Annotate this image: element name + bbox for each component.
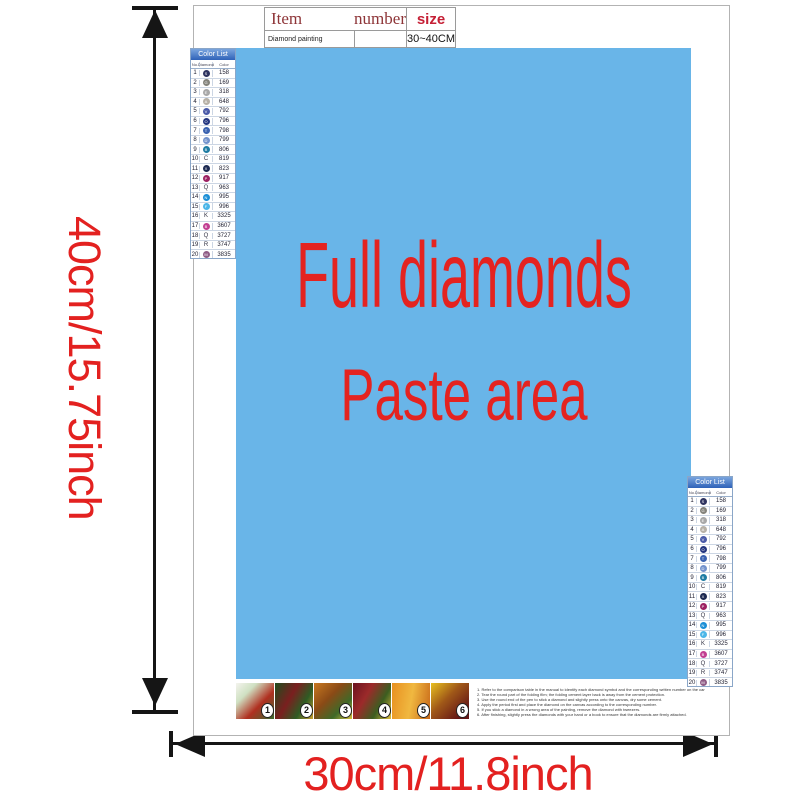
dmc-color-code: 963	[710, 613, 732, 619]
color-list-rows: 1S1582G1693E3184A6485V7926O7967T7988D799…	[688, 497, 732, 687]
color-swatch: F	[203, 203, 210, 210]
number-header: number	[354, 8, 406, 31]
diamond-symbol-icon: B	[697, 651, 710, 658]
step-number-badge: 3	[339, 703, 352, 718]
dmc-color-code: 806	[213, 147, 235, 153]
diamond-symbol-icon: B	[697, 574, 710, 581]
diamond-symbol-icon: Q	[200, 185, 213, 191]
color-row-number: 3	[191, 89, 200, 95]
color-row: 2G169	[191, 79, 235, 89]
symbol-letter: Q	[204, 233, 209, 239]
diamond-symbol-icon: P	[697, 603, 710, 610]
dmc-color-code: 158	[213, 70, 235, 76]
diamond-symbol-icon: T	[200, 127, 213, 134]
color-row-number: 18	[688, 661, 697, 667]
dmc-color-code: 917	[710, 603, 732, 609]
step-number-badge: 2	[300, 703, 313, 718]
diamond-symbol-icon: M	[697, 679, 710, 686]
diamond-symbol-icon: R	[200, 242, 213, 248]
dmc-color-code: 3727	[213, 233, 235, 239]
horizontal-dimension-line	[172, 742, 716, 745]
color-row: 9B806	[191, 145, 235, 155]
color-swatch: B	[700, 651, 707, 658]
dmc-color-code: 648	[213, 99, 235, 105]
color-row-number: 19	[688, 670, 697, 676]
dmc-color-code: 3747	[710, 670, 732, 676]
diamond-symbol-icon: Q	[200, 233, 213, 239]
color-swatch: G	[203, 79, 210, 86]
dmc-color-code: 3325	[213, 213, 235, 219]
color-swatch: E	[700, 517, 707, 524]
color-row-number: 18	[191, 233, 200, 239]
symbol-letter: Q	[701, 613, 706, 619]
dmc-color-code: 169	[213, 80, 235, 86]
dmc-color-code: 158	[710, 498, 732, 504]
dmc-color-code: 792	[710, 536, 732, 542]
color-row: 4A648	[191, 98, 235, 108]
color-row-number: 15	[688, 632, 697, 638]
color-row-number: 20	[191, 252, 200, 258]
diamond-symbol-icon: K	[697, 641, 710, 647]
color-row: 16K3325	[191, 212, 235, 222]
color-row: 18Q3727	[191, 231, 235, 241]
color-swatch: V	[203, 108, 210, 115]
color-row-number: 9	[688, 575, 697, 581]
color-row: 13Q963	[688, 612, 732, 622]
diamond-symbol-icon: D	[697, 565, 710, 572]
height-dimension-label: 40cm/15.75inch	[58, 216, 110, 536]
dmc-color-code: 963	[213, 185, 235, 191]
canvas-sheet: Item number size Diamond painting 30~40C…	[193, 5, 730, 736]
color-swatch: T	[203, 127, 210, 134]
dmc-color-code: 796	[213, 118, 235, 124]
dmc-color-code: 318	[213, 89, 235, 95]
diamond-symbol-icon: D	[200, 137, 213, 144]
color-swatch: B	[203, 146, 210, 153]
vertical-arrow-bottom-cap	[132, 710, 178, 714]
color-list-right: Color List No. Diamond Color 1S1582G1693…	[687, 476, 733, 687]
diamond-symbol-icon: A	[697, 526, 710, 533]
step-thumbnail: 2	[275, 683, 313, 719]
diamond-symbol-icon: Q	[697, 613, 710, 619]
color-row: 10C819	[191, 155, 235, 165]
color-row: 3E318	[688, 516, 732, 526]
color-swatch: T	[700, 555, 707, 562]
diamond-symbol-icon: X	[200, 165, 213, 172]
dmc-color-code: 819	[710, 584, 732, 590]
color-row-number: 7	[191, 128, 200, 134]
diamond-symbol-icon: O	[697, 546, 710, 553]
color-row-number: 17	[191, 223, 200, 229]
color-swatch: O	[203, 118, 210, 125]
dmc-color-code: 792	[213, 108, 235, 114]
dmc-color-code: 3325	[710, 641, 732, 647]
diamond-symbol-icon: C	[697, 584, 710, 590]
color-row-number: 5	[191, 108, 200, 114]
color-row-number: 7	[688, 556, 697, 562]
step-thumbnail: 3	[314, 683, 352, 719]
step-number-badge: 4	[378, 703, 391, 718]
color-row-number: 3	[688, 517, 697, 523]
color-swatch: O	[700, 546, 707, 553]
diamond-symbol-icon: C	[200, 156, 213, 162]
color-row-number: 1	[191, 70, 200, 76]
dmc-color-code: 823	[710, 594, 732, 600]
color-swatch: A	[700, 526, 707, 533]
step-thumbnail: 1	[236, 683, 274, 719]
dmc-color-code: 799	[710, 565, 732, 571]
color-row-number: 6	[191, 118, 200, 124]
diamond-symbol-icon: S	[200, 70, 213, 77]
color-row-number: 8	[191, 137, 200, 143]
color-list-title: Color List	[191, 49, 235, 60]
dmc-color-code: 819	[213, 156, 235, 162]
dmc-color-code: 995	[710, 622, 732, 628]
color-row-number: 2	[191, 80, 200, 86]
diamond-symbol-icon: T	[697, 555, 710, 562]
color-row: 19R3747	[688, 669, 732, 679]
color-row: 12P917	[688, 602, 732, 612]
color-row: 8D799	[191, 136, 235, 146]
paste-area-title-line1: Full diamonds	[296, 229, 632, 322]
diamond-symbol-icon: E	[200, 89, 213, 96]
step-thumbnail: 5	[392, 683, 430, 719]
color-row: 16K3325	[688, 640, 732, 650]
color-swatch: M	[203, 251, 210, 258]
symbol-letter: R	[701, 670, 705, 676]
color-row-number: 19	[191, 242, 200, 248]
color-list-rows: 1S1582G1693E3184A6485V7926O7967T7988D799…	[191, 69, 235, 259]
color-row: 20M3835	[688, 678, 732, 687]
color-row-number: 14	[191, 194, 200, 200]
color-row: 10C819	[688, 583, 732, 593]
symbol-letter: C	[204, 156, 208, 162]
dmc-color-code: 798	[213, 128, 235, 134]
col-diamond: Diamond	[697, 490, 710, 495]
color-row-number: 20	[688, 680, 697, 686]
color-row: 9B806	[688, 573, 732, 583]
color-row: 7T798	[191, 126, 235, 136]
color-row-number: 5	[688, 536, 697, 542]
color-row: 1S158	[688, 497, 732, 507]
color-row-number: 8	[688, 565, 697, 571]
color-list-column-headers: No. Diamond Color	[191, 60, 235, 69]
diamond-symbol-icon: V	[697, 536, 710, 543]
step-thumbnail: 6	[431, 683, 469, 719]
color-swatch: S	[203, 70, 210, 77]
diamond-symbol-icon: P	[200, 175, 213, 182]
color-row: 5V792	[191, 107, 235, 117]
symbol-letter: K	[701, 641, 705, 647]
color-swatch: S	[700, 498, 707, 505]
color-swatch: D	[700, 565, 707, 572]
color-row: 15F996	[191, 203, 235, 213]
step-thumbnail: 4	[353, 683, 391, 719]
color-swatch: P	[700, 603, 707, 610]
color-row: 14N995	[688, 621, 732, 631]
color-row-number: 16	[191, 213, 200, 219]
color-row-number: 11	[191, 166, 200, 172]
color-row: 3E318	[191, 88, 235, 98]
diamond-symbol-icon: K	[200, 213, 213, 219]
paste-area: Full diamonds Paste area	[236, 48, 691, 679]
col-color: Color	[710, 490, 732, 495]
color-row-number: 11	[688, 594, 697, 600]
width-dimension-label: 30cm/11.8inch	[168, 746, 728, 800]
color-row-number: 10	[688, 584, 697, 590]
color-row: 20M3835	[191, 250, 235, 259]
color-row-number: 12	[191, 175, 200, 181]
dmc-color-code: 806	[710, 575, 732, 581]
dmc-color-code: 648	[710, 527, 732, 533]
dmc-color-code: 169	[710, 508, 732, 514]
color-swatch: G	[700, 507, 707, 514]
color-swatch: F	[700, 631, 707, 638]
color-row: 11X823	[191, 164, 235, 174]
dmc-color-code: 3727	[710, 661, 732, 667]
color-row-number: 4	[688, 527, 697, 533]
color-row: 12P917	[191, 174, 235, 184]
dmc-color-code: 318	[710, 517, 732, 523]
symbol-letter: C	[701, 584, 705, 590]
diamond-symbol-icon: B	[200, 146, 213, 153]
color-row-number: 13	[191, 185, 200, 191]
color-list-title: Color List	[688, 477, 732, 488]
color-row-number: 15	[191, 204, 200, 210]
color-list-left: Color List No. Diamond Color 1S1582G1693…	[190, 48, 236, 259]
col-diamond: Diamond	[200, 62, 213, 67]
dmc-color-code: 798	[710, 556, 732, 562]
color-swatch: V	[700, 536, 707, 543]
number-value	[354, 31, 406, 48]
color-row-number: 9	[191, 147, 200, 153]
color-row-number: 4	[191, 99, 200, 105]
color-row: 1S158	[191, 69, 235, 79]
diamond-symbol-icon: N	[697, 622, 710, 629]
dmc-color-code: 799	[213, 137, 235, 143]
color-swatch: X	[700, 593, 707, 600]
color-row: 5V792	[688, 535, 732, 545]
dmc-color-code: 3607	[710, 651, 732, 657]
diamond-symbol-icon: F	[697, 631, 710, 638]
dmc-color-code: 995	[213, 194, 235, 200]
arrow-down-icon	[142, 678, 168, 706]
dmc-color-code: 796	[710, 546, 732, 552]
color-row-number: 12	[688, 603, 697, 609]
color-swatch: X	[203, 165, 210, 172]
color-row-number: 14	[688, 622, 697, 628]
instruction-text: 1. Refer to the comparison table in the …	[477, 687, 705, 717]
step-number-badge: 6	[456, 703, 469, 718]
color-swatch: P	[203, 175, 210, 182]
diamond-symbol-icon: N	[200, 194, 213, 201]
color-swatch: B	[203, 223, 210, 230]
color-row: 4A648	[688, 526, 732, 536]
color-row: 8D799	[688, 564, 732, 574]
dmc-color-code: 3835	[710, 680, 732, 686]
step-thumbnails: 123456	[236, 683, 469, 719]
color-row: 11X823	[688, 592, 732, 602]
symbol-letter: Q	[204, 185, 209, 191]
diamond-symbol-icon: O	[200, 118, 213, 125]
diamond-symbol-icon: R	[697, 670, 710, 676]
symbol-letter: R	[204, 242, 208, 248]
diamond-symbol-icon: M	[200, 251, 213, 258]
diamond-symbol-icon: G	[200, 79, 213, 86]
color-row-number: 13	[688, 613, 697, 619]
color-row: 17B3607	[191, 222, 235, 232]
color-swatch: N	[203, 194, 210, 201]
color-row: 14N995	[191, 193, 235, 203]
symbol-letter: K	[204, 213, 208, 219]
item-header: Item	[265, 8, 355, 31]
diamond-symbol-icon: F	[200, 203, 213, 210]
item-info-table: Item number size Diamond painting 30~40C…	[264, 7, 456, 48]
product-size-diagram: 40cm/15.75inch 30cm/11.8inch Item number…	[0, 0, 800, 800]
diamond-symbol-icon: E	[697, 517, 710, 524]
color-list-column-headers: No. Diamond Color	[688, 488, 732, 497]
color-row-number: 2	[688, 508, 697, 514]
dmc-color-code: 996	[213, 204, 235, 210]
dmc-color-code: 3835	[213, 252, 235, 258]
color-row: 17B3607	[688, 650, 732, 660]
color-row-number: 10	[191, 156, 200, 162]
color-swatch: A	[203, 98, 210, 105]
paste-area-title-line2: Paste area	[340, 359, 587, 432]
step-number-badge: 1	[261, 703, 274, 718]
color-row: 6O796	[688, 545, 732, 555]
color-row: 13Q963	[191, 184, 235, 194]
symbol-letter: Q	[701, 661, 706, 667]
diamond-symbol-icon: A	[200, 98, 213, 105]
diamond-symbol-icon: S	[697, 498, 710, 505]
color-swatch: E	[203, 89, 210, 96]
diamond-symbol-icon: G	[697, 507, 710, 514]
color-row: 6O796	[191, 117, 235, 127]
diamond-symbol-icon: Q	[697, 661, 710, 667]
size-header: size	[406, 8, 455, 31]
item-value: Diamond painting	[265, 31, 355, 48]
color-row: 7T798	[688, 554, 732, 564]
color-swatch: N	[700, 622, 707, 629]
color-row: 19R3747	[191, 241, 235, 251]
arrow-up-icon	[142, 10, 168, 38]
color-swatch: D	[203, 137, 210, 144]
color-swatch: M	[700, 679, 707, 686]
color-row-number: 17	[688, 651, 697, 657]
diamond-symbol-icon: V	[200, 108, 213, 115]
color-row-number: 1	[688, 498, 697, 504]
instruction-line: 6. After finishing, slightly press the d…	[477, 712, 705, 717]
dmc-color-code: 3607	[213, 223, 235, 229]
diamond-symbol-icon: B	[200, 223, 213, 230]
color-row: 15F996	[688, 631, 732, 641]
col-color: Color	[213, 62, 235, 67]
dmc-color-code: 3747	[213, 242, 235, 248]
color-swatch: B	[700, 574, 707, 581]
dmc-color-code: 823	[213, 166, 235, 172]
diamond-symbol-icon: X	[697, 593, 710, 600]
color-row-number: 16	[688, 641, 697, 647]
step-number-badge: 5	[417, 703, 430, 718]
size-value: 30~40CM	[406, 31, 455, 48]
color-row-number: 6	[688, 546, 697, 552]
dmc-color-code: 996	[710, 632, 732, 638]
vertical-dimension-line	[153, 10, 156, 712]
color-row: 2G169	[688, 507, 732, 517]
color-row: 18Q3727	[688, 659, 732, 669]
dmc-color-code: 917	[213, 175, 235, 181]
